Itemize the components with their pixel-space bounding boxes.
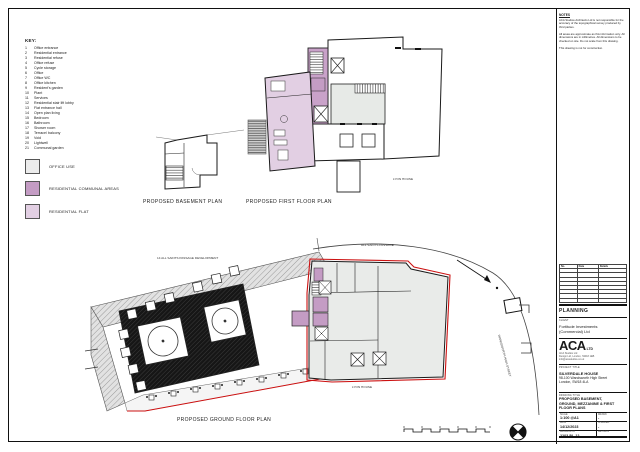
key-swatch-row: OFFICE USE xyxy=(25,159,147,174)
notes-paragraph: All areas are approximate as this inform… xyxy=(559,33,625,44)
key-swatch-label: RESIDENTIAL COMMUNAL AREAS xyxy=(49,186,119,191)
key-swatch-label: OFFICE USE xyxy=(49,164,75,169)
project-section: PROJECT TITLE SILVERDALE HOUSE 98-100 Wa… xyxy=(559,364,627,384)
key-item-label: Communal garden xyxy=(34,146,147,151)
key-swatch-color xyxy=(25,181,40,196)
basement-plan-drawing xyxy=(156,110,246,205)
revision-cell xyxy=(598,298,626,302)
client-name-line2: (Commercial) Ltd xyxy=(559,329,627,334)
key-item-number: 21 xyxy=(25,146,34,151)
key-swatch-row: RESIDENTIAL COMMUNAL AREAS xyxy=(25,181,147,196)
key-title: KEY: xyxy=(25,38,147,43)
status-section: PLANNING xyxy=(559,304,627,314)
logo-address-line: info@acastudios.co.uk xyxy=(559,358,627,361)
logo-section: ACA LTD ACA Studios LtdDesign Ltd, Londo… xyxy=(559,338,627,361)
ground-passage-label: ALL SAINTS PASSAGE xyxy=(361,243,394,247)
field-value: 1:100 @A1 xyxy=(560,416,595,420)
project-section-label: PROJECT TITLE xyxy=(559,366,627,369)
revision-table-section: No.DateDetails xyxy=(559,264,627,303)
key-swatch-color xyxy=(25,159,40,174)
ground-floor-plan-label: PROPOSED GROUND FLOOR PLAN xyxy=(177,417,271,423)
first-floor-plan-label: PROPOSED FIRST FLOOR PLAN xyxy=(246,199,332,205)
revision-cell xyxy=(577,298,598,302)
first-floor-plan-drawing: LYON HOUSE xyxy=(245,20,460,205)
field-value: 14/12/2023 xyxy=(560,425,595,429)
notes-section: NOTES ACA Studios Architects Ltd is not … xyxy=(559,13,625,54)
key-swatch-label: RESIDENTIAL FLAT xyxy=(49,209,89,214)
revision-table: No.DateDetails xyxy=(559,264,627,303)
key-item: 21Communal garden xyxy=(25,146,147,151)
logo-address-lines: ACA Studios LtdDesign Ltd, London, SW18 … xyxy=(559,352,627,361)
project-address-line2: London, SW18 4LA xyxy=(559,380,627,384)
drawing-title-section: DRAWING TITLE PROPOSED BASEMENT, GROUND,… xyxy=(559,392,627,411)
ground-lyon-house-label: LYON HOUSE xyxy=(352,385,372,389)
scale-bar xyxy=(400,420,500,440)
key-legend: KEY: 1Office entrance2Residential entran… xyxy=(25,38,147,219)
field-cell-secondary: DRAWN- xyxy=(596,413,627,421)
key-swatch-color xyxy=(25,204,40,219)
titleblock-bottom-rule xyxy=(559,436,627,438)
field-row: DATE14/12/2023CHECKED- xyxy=(559,421,627,430)
field-cell: DATE14/12/2023 xyxy=(559,422,596,430)
client-section: CLIENT Fortitude Investments (Commercial… xyxy=(559,317,627,334)
key-swatch-row: RESIDENTIAL FLAT xyxy=(25,204,147,219)
notes-title: NOTES xyxy=(559,13,625,17)
ground-floor-plan-drawing: 14 ALL SAINTS PASSAGE DEVELOPMENT ALL SA… xyxy=(85,235,530,430)
field-cell-secondary: CHECKED- xyxy=(596,422,627,430)
titleblock-divider xyxy=(556,8,557,444)
key-items: 1Office entrance2Residential entrance3Re… xyxy=(25,46,147,151)
field-cell: SCALE1:100 @A1 xyxy=(559,413,596,421)
fields-section: SCALE1:100 @A1DRAWN-DATE14/12/2023CHECKE… xyxy=(559,412,627,438)
aca-logo: ACA xyxy=(559,339,586,352)
field-value: - xyxy=(598,416,626,420)
drawing-title-line3: FLOOR PLANS xyxy=(559,406,627,411)
field-value: - xyxy=(598,425,626,429)
field-row: SCALE1:100 @A1DRAWN- xyxy=(559,412,627,421)
basement-plan-label: PROPOSED BASEMENT PLAN xyxy=(143,199,222,205)
title-block: NOTES ACA Studios Architects Ltd is not … xyxy=(558,8,629,444)
aca-logo-suffix: LTD xyxy=(587,347,593,351)
notes-paragraph: This drawing is not for construction. xyxy=(559,47,625,51)
first-lyon-house-label: LYON HOUSE xyxy=(393,177,413,181)
status-label: PLANNING xyxy=(559,308,627,314)
drawing-sheet: KEY: 1Office entrance2Residential entran… xyxy=(0,0,640,452)
notes-paragraph: ACA Studios Architects Ltd is not respon… xyxy=(559,19,625,30)
key-swatches: OFFICE USERESIDENTIAL COMMUNAL AREASRESI… xyxy=(25,159,147,219)
notes-body: ACA Studios Architects Ltd is not respon… xyxy=(559,19,625,51)
revision-row xyxy=(560,298,627,302)
ground-development-label: 14 ALL SAINTS PASSAGE DEVELOPMENT xyxy=(157,256,218,260)
client-section-label: CLIENT xyxy=(559,319,627,322)
revision-cell xyxy=(560,298,578,302)
north-arrow-icon xyxy=(508,422,528,442)
ground-street-label: WANDSWORTH HIGH STREET xyxy=(497,334,512,377)
